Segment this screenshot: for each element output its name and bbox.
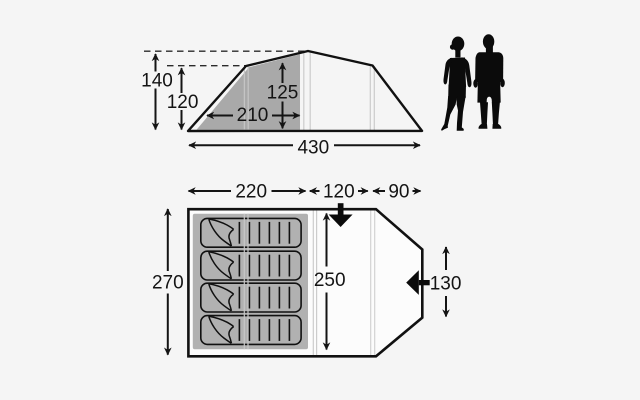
svg-text:210: 210 xyxy=(237,105,269,126)
svg-text:120: 120 xyxy=(167,92,199,113)
svg-text:250: 250 xyxy=(314,270,346,291)
svg-text:130: 130 xyxy=(430,274,462,295)
svg-text:125: 125 xyxy=(267,83,299,104)
svg-text:220: 220 xyxy=(235,182,267,203)
svg-text:90: 90 xyxy=(388,182,409,203)
svg-text:120: 120 xyxy=(323,182,355,203)
svg-text:430: 430 xyxy=(297,138,329,159)
svg-text:270: 270 xyxy=(152,273,184,294)
svg-text:140: 140 xyxy=(141,71,173,92)
